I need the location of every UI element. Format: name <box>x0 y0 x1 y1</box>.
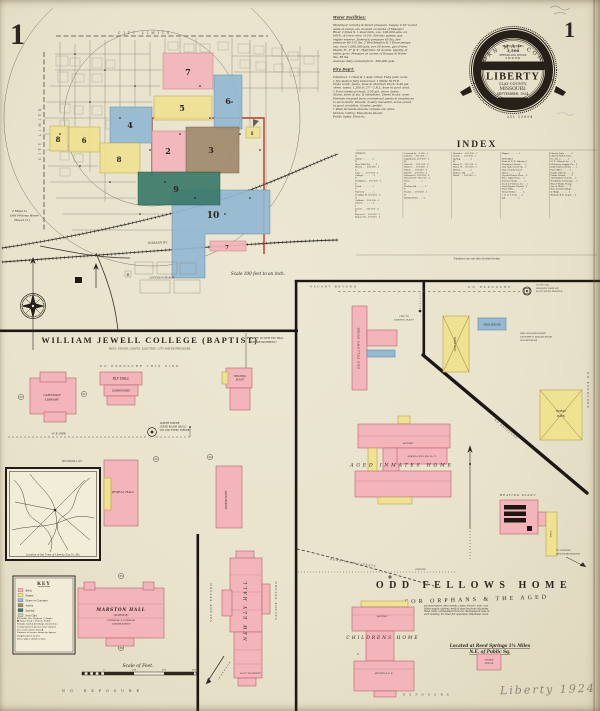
marker-35: 35 <box>119 574 123 578</box>
pipe-note-2: HEATING PLANT <box>393 319 414 322</box>
plate-number: 351 13894 <box>507 115 533 119</box>
carnegie-label-1: CARNEGIE <box>43 393 61 397</box>
north-arrow-icon <box>93 263 99 288</box>
odd-fellows-home-label: ODD FELLOWS HOME <box>357 327 361 369</box>
key-label-brick: Brick <box>26 590 33 593</box>
located-note-1: Located at Reed Springs 1¾ Miles <box>449 643 531 648</box>
smoke-house-2: HOUSE <box>484 662 494 665</box>
new-ely-label: NEW ELY HALL <box>243 579 249 642</box>
water-facilities-note: Water Facilities: Municipal. Gravity & d… <box>333 12 446 66</box>
corner-scribble <box>550 6 570 14</box>
page-edge <box>594 0 595 711</box>
index-column-4: Wigan . . . . . . . 5 SPECIALS Bank of N… <box>500 152 549 219</box>
cistern-line-label: CISTERN <box>415 568 426 571</box>
fire-dept-title: Fire Dep't: <box>333 68 446 72</box>
building-aged-inmates-home <box>355 416 451 504</box>
shed-label: SHED <box>550 530 553 537</box>
childrens-c: C <box>357 652 359 656</box>
railroad-label-2: WABASH RY. <box>148 240 168 245</box>
district-9 <box>138 172 220 205</box>
street-note: 60 FT. TO STREET <box>240 672 261 675</box>
seal-report-2: DEPARTMENT SEE REPORT <box>496 67 530 70</box>
marker-27: 27 <box>19 395 23 399</box>
scale-tick-1: 100 <box>132 669 137 672</box>
inset-caption: Location of the Town of Liberty Clay Co.… <box>25 554 81 557</box>
svg-text:7: 7 <box>185 67 191 77</box>
sanborn-map-sheet: CITY LIMITS CITY LIMITS H. & ST. JO. R.R… <box>0 0 600 711</box>
vacant-beyond-top: VACANT BEYOND <box>309 285 358 289</box>
seal-date: SEPTEMBER, 1924. <box>497 92 530 96</box>
building-dormitory <box>216 466 242 528</box>
key-label-adobe: Adobe <box>25 605 34 608</box>
seal-office: NEW YORK <box>502 99 525 103</box>
college-heating-2: PLANT <box>235 379 245 382</box>
ely-sub-label: DORMITORIES <box>111 390 130 393</box>
lincoln-place-label: LINCOLN PLACE <box>149 276 175 280</box>
windmill-st-label: WINDMILL ST. <box>62 459 83 463</box>
horse-barn-2: BARN <box>556 414 566 418</box>
no-exposure-right: NO EXPOSURE <box>586 372 590 409</box>
childrens-d2: KITCHEN & D. R. <box>374 673 393 675</box>
located-note-2: N.E. of Public Sq. <box>469 649 511 654</box>
laundry-note-3: NO EXPOSURE <box>519 339 538 342</box>
cistern-arrow <box>566 557 586 567</box>
svg-text:3: 3 <box>208 145 214 155</box>
index-title: INDEX <box>457 140 498 150</box>
sanborn-seal: SANBORN MAP COMPANY POPULATION 3,500 PRE… <box>460 27 574 120</box>
svg-text:6: 6 <box>82 136 87 145</box>
scale-tick-3: 300 <box>192 669 197 672</box>
fire-dept-body: Volunteer. 1 Chief & 1 Asst. Chief. Full… <box>333 76 446 119</box>
marker-36: 36 <box>119 646 123 650</box>
svg-text:1: 1 <box>250 131 253 137</box>
building-heating-plant <box>500 500 546 534</box>
heating-plant-label: HEATING PLANT <box>499 493 536 497</box>
college-no-exposure: NO EXPOSURE THIS SIDE <box>100 364 181 368</box>
scale-bar: 0 100 200 300 <box>82 669 197 676</box>
map-scale-note: Scale 100 feet to an inch. <box>231 271 285 276</box>
scale-tick-0: 0 <box>103 669 105 672</box>
seal-ribbon-left <box>460 86 472 96</box>
dormitory-label: DORMITORY <box>224 490 228 511</box>
north-arrow-right <box>467 445 472 560</box>
svg-text:10: 10 <box>207 211 220 221</box>
svg-text:7: 7 <box>225 245 229 251</box>
index-column-3: Shrader . . 101-199 . 5 South . . . 201-… <box>452 152 501 219</box>
marker-25: 25 <box>154 457 158 461</box>
svg-text:4: 4 <box>127 120 133 130</box>
index-column-2: Leonard Av . 1-160 . 6 Liberty . . 201-2… <box>403 152 452 219</box>
sheet-number-right: 1 <box>564 17 575 42</box>
no-exposure-diagonal: NO EXPOSURE <box>493 418 518 440</box>
jewell-label: JEWELL HALL <box>111 490 134 494</box>
index-footnote: Numbers run one side of street fronts. <box>453 258 501 261</box>
milk-house-label: MILK HOUSE <box>484 324 501 327</box>
r-building-label: R <box>127 273 130 277</box>
index-column-5: Liberty Ldry . . . . . 3 Liberty Mill & … <box>549 152 598 219</box>
water-tower-3: ON 100' STEEL TOWER <box>160 429 190 432</box>
key-legend-lines: ✚ Double Fire Hydrant ○ Single ● Water T… <box>17 617 74 640</box>
odd-fellows-title: ODD FELLOWS HOME <box>376 580 572 591</box>
svg-text:(Sheet 11): (Sheet 11) <box>14 218 31 222</box>
odd-fellows-subtitle: FOR ORPHANS & THE AGED <box>405 594 549 605</box>
vacant-right: VACANT BEYOND <box>274 580 278 620</box>
pipe-label: 4" B. PIPE <box>52 432 66 436</box>
aged-d2: BOILER & ENG. RM. No. 72 <box>407 456 438 458</box>
college-subtitle: HEAT: STEAM. LIGHTS: ELECTRIC. CITY WATE… <box>108 347 192 351</box>
tank-note-3: 80 FT. STEEL TRESTLE <box>536 290 563 293</box>
svg-text:6: 6 <box>225 96 231 106</box>
key-label-special: Special <box>26 610 35 613</box>
key-label-frame: Frame <box>26 595 34 598</box>
vacant-left: VACANT BEYOND <box>209 582 213 622</box>
water-tank-icon <box>523 287 531 295</box>
key-title: KEY <box>37 582 51 587</box>
cistern-note-2: (SEE DETACHMENT) <box>556 553 580 556</box>
district-1-flag <box>253 119 259 127</box>
carnegie-label-2: LIBRARY <box>44 398 60 402</box>
city-limits-label-top: CITY LIMITS <box>118 31 172 35</box>
marston-label: MARSTON HALL <box>95 607 145 612</box>
aged-inmates-label: AGED INMATES HOME <box>349 463 454 469</box>
marston-sub: (SCIENCE) <box>114 613 129 617</box>
key-swatch-frame <box>18 594 23 597</box>
street-arrow <box>206 656 230 684</box>
sheet-number-left: 1 <box>10 18 25 51</box>
key-swatch-stone <box>18 599 23 602</box>
pencil-annotation: Liberty 1924 <box>500 682 596 698</box>
key-swatch-special <box>18 609 23 612</box>
key-swatch-adobe <box>18 604 23 607</box>
detach-note-2: (SEE DETACHMENT) <box>250 341 276 344</box>
svg-text:5: 5 <box>179 103 185 113</box>
key-legend: KEY Brick Frame Stone or Concrete Adobe … <box>13 576 75 654</box>
aged-d1: LAUNDRY <box>402 443 414 445</box>
city-limits-label-left: CITY LIMITS <box>38 106 42 160</box>
fire-dept-note: Fire Dep't: Volunteer. 1 Chief & 1 Asst.… <box>333 64 446 122</box>
no-exposure-top: NO EXPOSURE <box>468 285 512 289</box>
faint-stamp <box>558 113 574 116</box>
street-index: STREETS A Arthur . . . . . . . 3 B Blue … <box>354 152 598 219</box>
odd-fellows-section: VACANT BEYOND NO EXPOSURE 50,000 GAL. WO… <box>297 284 590 698</box>
index-column-1: STREETS A Arthur . . . . . . . 3 B Blue … <box>354 152 403 219</box>
svg-text:2 Miles to: 2 Miles to <box>11 209 27 213</box>
exposure-bottom: EXPOSURE <box>403 693 453 697</box>
key-swatch-brick <box>18 589 23 592</box>
scale-bar-label: Scale of Feet. <box>122 663 154 669</box>
scale-tick-2: 200 <box>162 669 167 672</box>
svg-text:9: 9 <box>173 184 179 194</box>
road-label: ROAD FROM LIBERTY <box>329 557 377 568</box>
childrens-home-label: CHILDRENS HOME <box>346 636 419 641</box>
svg-text:8: 8 <box>117 155 122 164</box>
odd-fellows-description: By subscription. Heat: steam. Lights: el… <box>424 605 540 616</box>
reference-note: 2 Miles to Odd Fellows Home (Sheet 11) <box>10 209 39 222</box>
seal-population: 3,500 <box>507 48 520 53</box>
svg-text:8: 8 <box>56 135 61 144</box>
no-exposure-bottom-left: NO EXPOSURE <box>62 689 144 693</box>
town-map: CITY LIMITS CITY LIMITS H. & ST. JO. R.R… <box>2 0 338 330</box>
horse-barn-1: HORSE <box>555 409 566 413</box>
key-label-stone: Stone or Concrete <box>26 600 49 603</box>
seal-winds: S.W. & N.W. <box>506 57 521 60</box>
water-facilities-title: Water Facilities: <box>333 16 446 20</box>
solid-building <box>75 277 82 283</box>
new-ely-section: VACANT BEYOND VACANT BEYOND NEW ELY HALL… <box>206 551 278 686</box>
seal-county: CLAY COUNTY, <box>499 82 527 86</box>
svg-text:Odd Fellows Home: Odd Fellows Home <box>10 214 39 218</box>
marston-d2: LABORATORIES <box>111 623 131 626</box>
marker-24: 24 <box>208 455 212 459</box>
marker-21: 21 <box>82 392 86 396</box>
location-inset: Location of the Town of Liberty Clay Co.… <box>6 468 100 560</box>
water-facilities-body: Municipal. Gravity & direct pressure. Su… <box>333 24 446 63</box>
detach-note-1: 150 FT. TO NEW ELY HALL <box>250 337 284 340</box>
ely-label: ELY HALL <box>112 377 130 381</box>
seal-ribbon-right <box>554 86 566 96</box>
college-title: WILLIAM JEWELL COLLEGE (BAPTIST) <box>41 335 258 345</box>
childrens-d1: LAUNDRY <box>376 616 388 618</box>
cow-barn-label: COW BARN <box>454 336 457 351</box>
svg-text:2: 2 <box>165 146 171 156</box>
